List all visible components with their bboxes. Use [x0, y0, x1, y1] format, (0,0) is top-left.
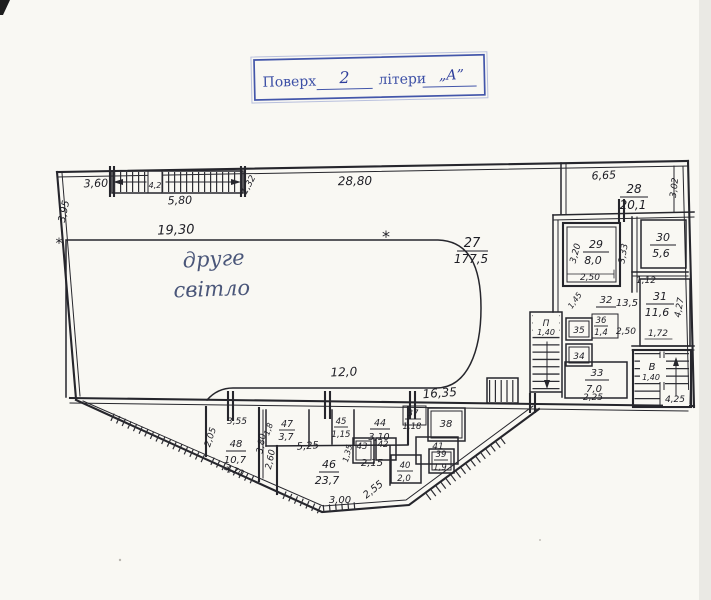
room-47-number: 47 [281, 419, 293, 430]
room-44-area: 3,10 [368, 432, 389, 443]
room-32-area: 13,5 [616, 298, 638, 309]
stamp-letters-label: літери [378, 71, 426, 88]
dim-r46-mid: 2,15 [361, 458, 383, 469]
dim-top-left-width: 3,60 [83, 177, 108, 191]
stamp-floor-label: Поверх [262, 74, 316, 91]
dim-r28-width: 6,65 [591, 168, 616, 182]
room-28-number: 28 [626, 182, 642, 196]
room-30-area: 5,6 [652, 247, 670, 260]
dim-r48-top: 3,55 [227, 417, 247, 427]
room-33-number: 33 [591, 368, 604, 379]
scan-speckle [539, 539, 541, 541]
asterisk-mark-left: * [56, 236, 63, 252]
stamp-letters-value: „А” [439, 67, 464, 84]
room-45-number: 45 [336, 417, 347, 427]
room-29-area: 8,0 [584, 254, 602, 267]
room-41-number: 41 [432, 442, 443, 452]
dim-top-total: 28,80 [338, 174, 373, 189]
dim-hall-top: 19,30 [157, 222, 195, 238]
room-31-number: 31 [653, 290, 667, 303]
room-46-area: 23,7 [315, 474, 340, 487]
staircase-right-height: 4,25 [665, 395, 685, 405]
room-32-number: 32 [600, 295, 613, 306]
room-44-number: 44 [374, 418, 386, 429]
room-43-number: 43 [357, 442, 368, 452]
hall-note-line1: друге [182, 245, 245, 272]
room-35-number: 35 [573, 326, 585, 336]
room-33-area: 7,0 [586, 384, 602, 395]
dim-r29-width: 2,50 [580, 273, 600, 283]
room-48-area: 10,7 [224, 455, 247, 466]
staircase-right-width: 1,40 [642, 373, 660, 382]
dim-below-corridor: 1,12 [636, 276, 656, 286]
room-30-number: 30 [656, 231, 670, 244]
room-34-number: 34 [573, 352, 585, 362]
staircase-right-label: В [649, 362, 656, 373]
staircase-left-width: 1,40 [537, 328, 555, 337]
room-28-area: 20,1 [620, 198, 647, 212]
room-31-area: 11,6 [645, 306, 670, 319]
room-37-area: 1,18 [403, 422, 423, 432]
room-29-number: 29 [589, 238, 603, 251]
room-47-area: 3,7 [278, 432, 293, 443]
floor-plan: Поверх 2 літери „А” * * друге світло 27 … [0, 0, 711, 600]
dim-stair-strip-length: 5,80 [167, 194, 192, 208]
dim-stair-strip-mid: 4,2 [149, 181, 162, 190]
dim-bottom-width: 3,00 [329, 495, 351, 506]
scanned-page: Поверх 2 літери „А” * * друге світло 27 … [0, 0, 711, 600]
dim-hall-bottom: 12,0 [330, 365, 358, 380]
dim-corridor-width: 5,25 [296, 440, 319, 453]
page-edge-shadow [699, 0, 711, 600]
room-38-number: 38 [440, 419, 453, 430]
asterisk-mark-right: * [382, 227, 390, 246]
room-36-number: 36 [596, 316, 607, 326]
dim-r32-width: 2,50 [616, 327, 636, 337]
room-48-number: 48 [230, 439, 243, 450]
stamp-floor-value: 2 [338, 68, 350, 87]
room-40-number: 40 [400, 461, 411, 471]
room-40-area: 2,0 [397, 474, 411, 484]
dim-r31-width: 1,72 [648, 329, 668, 339]
hall-note-line2: світло [173, 276, 250, 303]
dim-bottom-span: 16,35 [422, 385, 457, 401]
room-36-area: 1,4 [594, 328, 608, 338]
room-45-area: 1,15 [332, 430, 351, 440]
room-27-area: 177,5 [454, 252, 488, 266]
room-39-area: 1,9 [433, 463, 447, 473]
room-27-number: 27 [464, 236, 481, 251]
room-46-number: 46 [322, 458, 336, 471]
room-37-number: 37 [408, 409, 419, 419]
scan-speckle [119, 559, 121, 561]
